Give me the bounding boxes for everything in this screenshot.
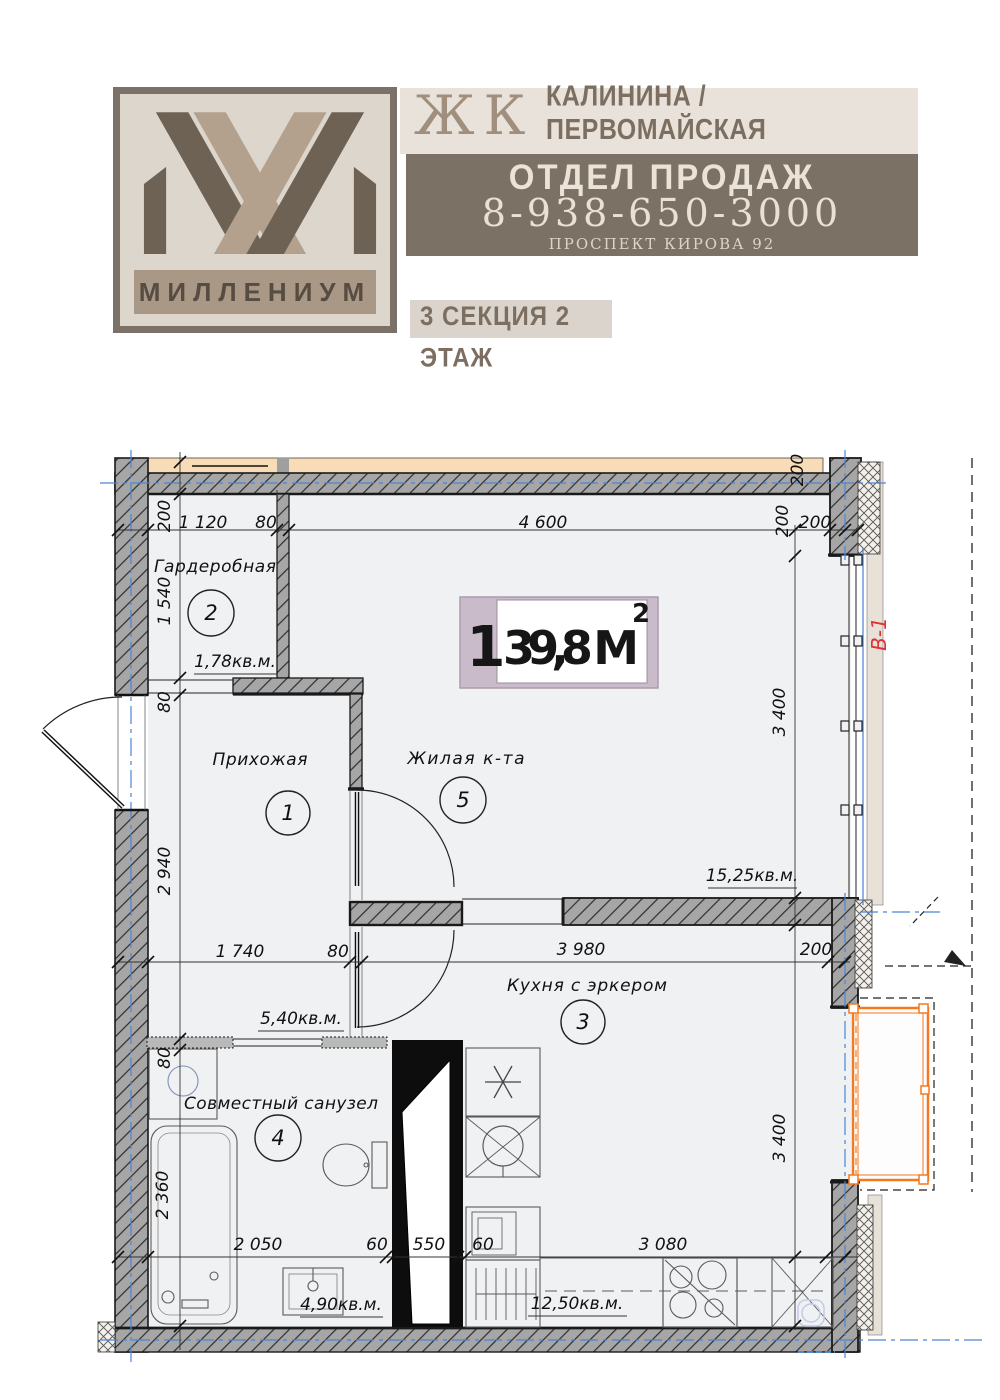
room-number: 4 (271, 1126, 284, 1150)
dim-label: 1 740 (216, 942, 265, 962)
dim-label: 1 120 (179, 513, 228, 533)
room-area: 5,40кв.м. (260, 1009, 342, 1029)
wall-bath-stub-right (322, 1037, 387, 1048)
room-number: 2 (204, 601, 217, 625)
dim-label: 80 (255, 513, 277, 533)
room-area: 1,78кв.м. (194, 652, 276, 672)
window-type-label: В-1 (867, 617, 891, 651)
entrance-door (43, 695, 148, 810)
floor-plan-drawing: 200 1 120 80 4 600 200 200 200 1 540 80 … (0, 440, 1000, 1400)
room-name-bathroom: Совместный санузел (184, 1094, 378, 1114)
flyer-page: МИЛЛЕНИУМ ЖК КАЛИНИНА /ПЕРВОМАЙСКАЯ ОТДЕ… (0, 0, 1000, 1400)
dim-label: 2 360 (153, 1171, 173, 1220)
wall-wardrobe (277, 494, 289, 678)
dim-label: 200 (799, 513, 831, 533)
section-floor-label: 3 СЕКЦИЯ 2 ЭТАЖ (420, 296, 612, 380)
room-name-kitchen: Кухня с эркером (507, 976, 667, 996)
bay-window (849, 998, 934, 1190)
dim-label: 200 (155, 500, 175, 532)
room-number: 5 (456, 788, 469, 812)
dim-label: 200 (773, 505, 793, 537)
dim-label: 3 400 (770, 688, 790, 737)
dim-label: 550 (413, 1235, 445, 1255)
sales-phone: 8-938-650-3000 (406, 194, 918, 234)
dim-label: 3 080 (639, 1235, 688, 1255)
sales-address: ПРОСПЕКТ КИРОВА 92 (406, 235, 918, 253)
room-area: 15,25кв.м. (706, 866, 799, 886)
wall-hall-kitchen (350, 902, 462, 925)
dim-label: 80 (155, 691, 175, 713)
dim-label: 80 (327, 942, 349, 962)
complex-name: КАЛИНИНА /ПЕРВОМАЙСКАЯ (546, 80, 918, 147)
dim-label: 80 (155, 1047, 175, 1069)
entry-arrow-icon (944, 950, 966, 966)
total-area-sup: 2 (632, 599, 650, 629)
dim-label: 200 (800, 940, 832, 960)
section-floor-band: 3 СЕКЦИЯ 2 ЭТАЖ (410, 300, 612, 338)
room-name-living: Жилая к-та (407, 749, 525, 769)
dim-label: 2 050 (234, 1235, 283, 1255)
wall-living-kitchen (563, 898, 858, 925)
dim-label: 3 400 (770, 1114, 790, 1163)
logo-brand-name: МИЛЛЕНИУМ (134, 270, 376, 314)
rooms-count: 1 (467, 615, 506, 680)
dim-label: 200 (788, 454, 808, 486)
dim-label: 4 600 (519, 513, 568, 533)
room-number: 1 (281, 801, 294, 825)
total-area-badge: 1 39,8 М 2 (460, 597, 658, 688)
complex-name-band: ЖК КАЛИНИНА /ПЕРВОМАЙСКАЯ (400, 88, 918, 154)
sales-label: ОТДЕЛ ПРОДАЖ (509, 156, 816, 197)
total-area-value: 39,8 М (503, 621, 639, 675)
dim-label: 3 980 (557, 940, 606, 960)
dim-label: 60 (366, 1235, 388, 1255)
dim-label: 60 (472, 1235, 494, 1255)
wall-top (115, 473, 845, 494)
wall-bath-stub-left (147, 1037, 233, 1048)
logo-monogram-icon (132, 102, 388, 260)
room-area: 4,90кв.м. (300, 1295, 382, 1315)
company-logo: МИЛЛЕНИУМ (113, 87, 397, 333)
wall-wardrobe-bottom (233, 678, 363, 694)
sales-band: ОТДЕЛ ПРОДАЖ 8-938-650-3000 ПРОСПЕКТ КИР… (406, 154, 918, 256)
ventilation-shaft (392, 1040, 463, 1327)
room-number: 3 (576, 1010, 589, 1034)
room-area: 12,50кв.м. (531, 1294, 624, 1314)
dim-label: 1 540 (155, 577, 175, 626)
wall-hall-living (350, 694, 362, 788)
complex-prefix: ЖК (414, 84, 534, 147)
dim-label: 2 940 (155, 847, 175, 896)
room-name-wardrobe: Гардеробная (154, 557, 276, 577)
room-name-hall: Прихожая (213, 750, 308, 770)
